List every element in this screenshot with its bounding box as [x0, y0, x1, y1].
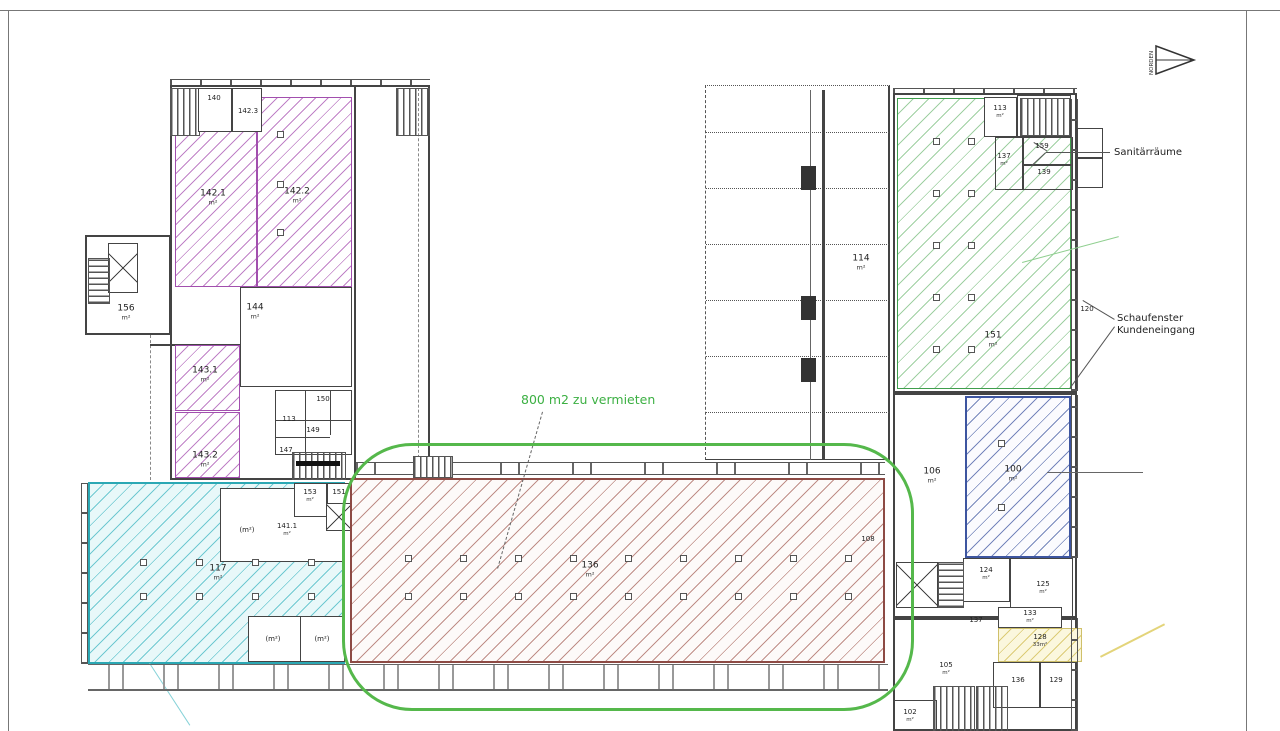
column-marker: [968, 346, 975, 353]
grid-dotted-line: [706, 356, 889, 357]
sanitary-leader: [1046, 152, 1110, 153]
room-label: 149: [306, 427, 319, 435]
room-label: 120: [1080, 306, 1093, 314]
room-label: 139: [1037, 169, 1050, 177]
frame-right: [1246, 10, 1247, 731]
column-marker: [968, 138, 975, 145]
room-label: 113: [282, 416, 295, 424]
column-marker: [933, 346, 940, 353]
room-label: 124m²: [979, 567, 992, 581]
room-label: 144m²: [246, 303, 263, 320]
room-label: (m²): [265, 636, 280, 644]
room-label: 136m²: [581, 561, 598, 578]
column-marker: [998, 504, 1005, 511]
room-label: 137m²: [997, 153, 1010, 167]
room-label: 102m²: [903, 709, 916, 723]
rent-annotation: 800 m2 zu vermieten: [521, 392, 655, 407]
staircase: [396, 88, 430, 136]
room-label: 12833m²: [1033, 634, 1048, 648]
staircase: [170, 88, 200, 136]
column-marker: [196, 593, 203, 600]
corridor-dash: [418, 88, 419, 478]
room-label: 106m²: [923, 467, 940, 484]
staircase: [933, 686, 975, 731]
room-label: 143.1m²: [192, 366, 218, 383]
wall: [810, 90, 811, 460]
column-marker: [140, 559, 147, 566]
north-label: NORDEN: [1149, 51, 1155, 75]
column-marker: [933, 190, 940, 197]
column-marker: [277, 229, 284, 236]
shop-window-label-1: Schaufenster: [1117, 313, 1183, 324]
grid-dotted-line: [706, 412, 889, 413]
staircase: [938, 562, 964, 608]
room-label: 133m²: [1023, 610, 1036, 624]
column-marker: [277, 181, 284, 188]
floor-plan-canvas: NORDEN 800 m2 zu vermieten: [0, 0, 1280, 731]
staircase: [88, 258, 110, 304]
room-label: 151: [332, 489, 345, 497]
staircase: [976, 686, 1008, 731]
column-marker: [196, 559, 203, 566]
elevator: [108, 243, 138, 293]
window-band: [81, 483, 88, 664]
room-label: 142.2m²: [284, 187, 310, 204]
middle-building-outline: [705, 85, 890, 460]
column-marker: [277, 131, 284, 138]
room-label: 136: [1011, 677, 1024, 685]
wall: [300, 616, 301, 662]
column-marker: [933, 294, 940, 301]
yellow-mark-line: [1100, 623, 1165, 657]
staircase: [292, 452, 346, 480]
room-label: 147: [279, 447, 292, 455]
column-marker: [968, 242, 975, 249]
window-band: [1071, 618, 1078, 731]
room-label: 137: [969, 617, 982, 625]
column-marker: [968, 294, 975, 301]
side-room-box: [1077, 158, 1103, 188]
room-label: 141.1m²: [277, 523, 297, 537]
room-label: (m²): [314, 636, 329, 644]
column-marker: [252, 559, 259, 566]
grid-dotted-line: [706, 300, 889, 301]
room-label: (m²): [239, 527, 254, 535]
column-marker: [308, 559, 315, 566]
frame-left: [8, 10, 9, 731]
section-line: [1047, 472, 1143, 473]
wall: [275, 437, 330, 438]
room-label: 140: [207, 95, 220, 103]
wall: [305, 390, 306, 455]
room-label: 114m²: [852, 254, 869, 271]
wall: [354, 85, 356, 480]
room-label: 151m²: [984, 331, 1001, 348]
staircase: [1020, 98, 1070, 136]
room-label: 113m²: [993, 105, 1006, 119]
room-label: 125m²: [1036, 581, 1049, 595]
shop-window-label-2: Kundeneingang: [1117, 325, 1195, 336]
grid-dotted-line: [706, 244, 889, 245]
column-marker: [968, 190, 975, 197]
stair-rail: [296, 461, 340, 466]
window-wall-dashed: [150, 335, 151, 480]
column-marker: [140, 593, 147, 600]
room-label: 159: [1035, 143, 1048, 151]
room-label: 150: [316, 396, 329, 404]
north-arrow-icon: NORDEN: [1142, 42, 1202, 78]
grid-dotted-line: [706, 188, 889, 189]
column-marker: [933, 138, 940, 145]
room-label: 105m²: [939, 662, 952, 676]
wall: [330, 390, 331, 435]
room-label: 100m²: [1004, 465, 1021, 482]
cyan-bottom-rooms-box: [248, 616, 345, 662]
shaft-block: [801, 296, 816, 320]
room-label: 142.3: [238, 108, 258, 116]
room-label: 142.1m²: [200, 189, 226, 206]
column-marker: [252, 593, 259, 600]
column-marker: [308, 593, 315, 600]
grid-dotted-line: [706, 132, 889, 133]
side-room-box: [1077, 128, 1103, 158]
room-label: 153m²: [303, 489, 316, 503]
room-label: 143.2m²: [192, 451, 218, 468]
column-marker: [998, 440, 1005, 447]
frame-top: [0, 10, 1280, 11]
room-label: 129: [1049, 677, 1062, 685]
shaft-block: [801, 358, 816, 382]
sanitary-label: Sanitärräume: [1114, 147, 1182, 158]
room-label: 117m²: [209, 564, 226, 581]
column-marker: [933, 242, 940, 249]
highlight-loop: [342, 443, 914, 711]
room-label: 156m²: [117, 304, 134, 321]
window-band: [1071, 395, 1078, 558]
shaft-block: [801, 166, 816, 190]
wall: [822, 90, 825, 460]
room-label: 108: [861, 536, 874, 544]
